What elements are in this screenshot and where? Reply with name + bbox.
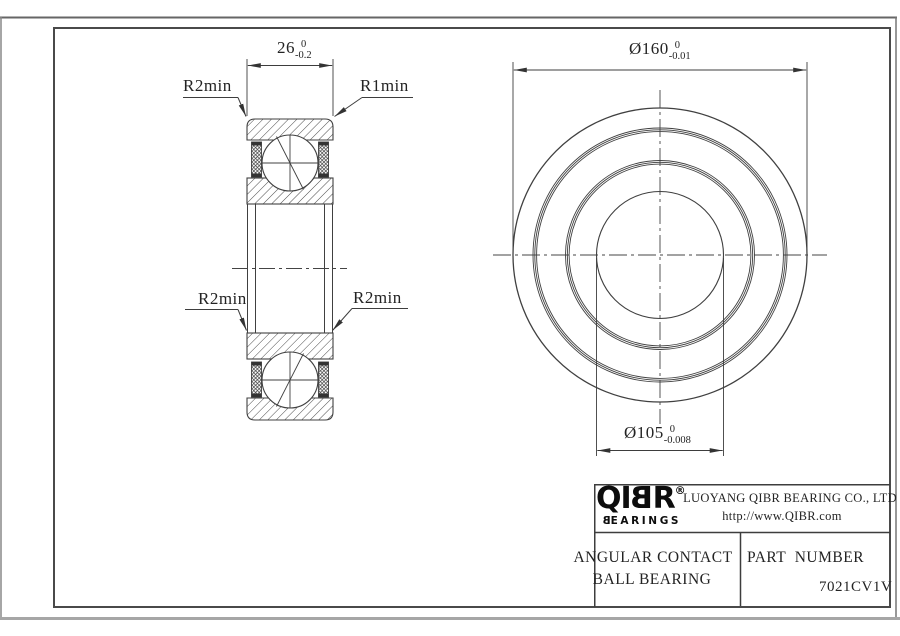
seal-bottom-left: [252, 362, 262, 397]
width-dim-tol-lower: -0.2: [295, 50, 312, 61]
radius-label-top-left: R2min: [183, 76, 232, 96]
outer-dia-dim-text: Ø1600-0.01: [629, 40, 691, 62]
radius-label-bottom-left: R2min: [198, 289, 247, 309]
company-name: LUOYANG QIBR BEARING CO., LTD: [683, 491, 897, 506]
logo-char-q: Q: [596, 481, 621, 516]
drawing-linework: [0, 0, 900, 636]
width-dimension: [247, 59, 333, 116]
logo-sub-b: B: [600, 515, 611, 527]
section-view: [232, 119, 347, 420]
ball-bottom: [262, 352, 318, 408]
qibr-logo-subtext: BEARINGS: [600, 515, 686, 527]
product-name-line1: ANGULAR CONTACT: [573, 549, 732, 567]
bore-dia-dim-text: Ø1050-0.008: [624, 424, 691, 446]
logo-char-b: B: [631, 484, 653, 514]
part-number-label: PART NUMBER: [747, 549, 864, 567]
qibr-logo-word: QIBR: [596, 484, 675, 514]
logo-sub-rest: EARINGS: [611, 515, 681, 527]
outer-dia-tol-lower: -0.01: [669, 51, 691, 62]
part-number-value: 7021CV1V: [819, 579, 892, 596]
ball-top: [262, 135, 318, 191]
outer-dia-tol-upper: 0: [669, 40, 691, 51]
seal-bottom-right: [319, 362, 329, 397]
company-website: http://www.QIBR.com: [722, 509, 841, 524]
width-dim-tol-upper: 0: [295, 39, 312, 50]
page-edges: [0, 17, 900, 620]
seal-top-right: [319, 142, 329, 177]
outer-dia-dim-value: Ø160: [629, 40, 669, 57]
logo-char-r: R: [653, 481, 675, 516]
radius-label-bottom-right: R2min: [353, 288, 402, 308]
engineering-drawing-sheet: 260-0.2 Ø1600-0.01 Ø1050-0.008 R2min R1m…: [0, 0, 900, 636]
bore-dia-tol-lower: -0.008: [664, 435, 691, 446]
qibr-logo: QIBR® BEARINGS: [596, 484, 686, 527]
width-dim-value: 26: [277, 39, 295, 56]
front-view: [493, 90, 827, 424]
seal-top-left: [252, 142, 262, 177]
bore-dia-dim-value: Ø105: [624, 424, 664, 441]
logo-char-i: I: [621, 481, 631, 516]
width-dim-text: 260-0.2: [277, 39, 312, 61]
bore-dia-tol-upper: 0: [664, 424, 691, 435]
product-name-line2: BALL BEARING: [593, 571, 712, 589]
radius-label-top-right: R1min: [360, 76, 409, 96]
